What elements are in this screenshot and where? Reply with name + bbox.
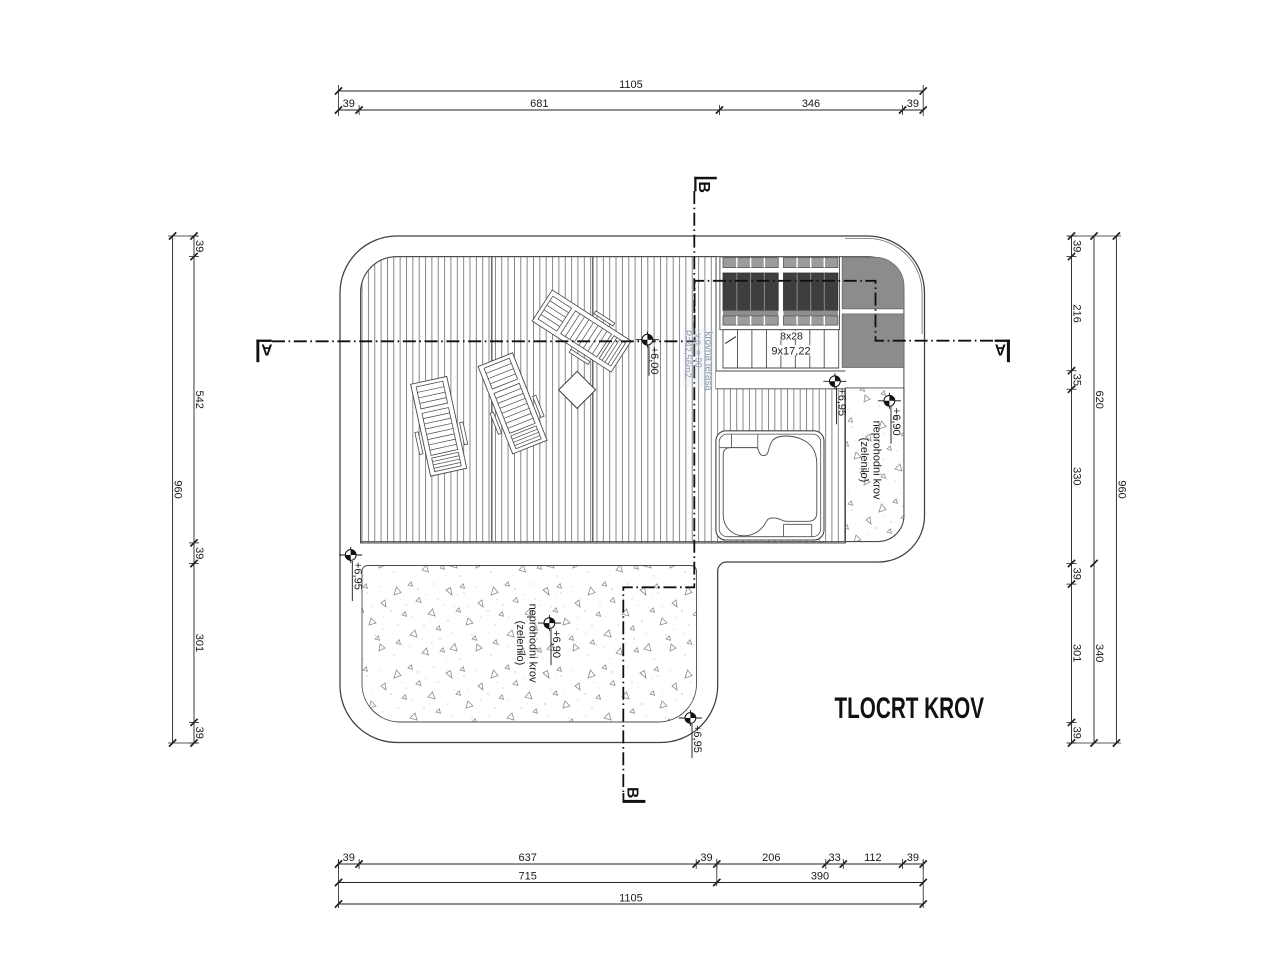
- svg-text:112: 112: [864, 852, 882, 864]
- svg-text:neprohodni krov: neprohodni krov: [527, 604, 539, 683]
- svg-text:(zelenilo): (zelenilo): [858, 438, 870, 483]
- svg-text:39: 39: [193, 547, 205, 559]
- svg-text:330: 330: [1071, 467, 1083, 485]
- svg-text:B: B: [695, 181, 712, 193]
- svg-text:(zelenilo): (zelenilo): [514, 621, 526, 666]
- svg-text:346: 346: [802, 98, 820, 110]
- svg-text:39: 39: [343, 98, 355, 110]
- svg-text:39: 39: [193, 727, 205, 739]
- svg-text:1105: 1105: [619, 893, 643, 905]
- svg-text:+6,90: +6,90: [550, 630, 562, 658]
- svg-text:9x17,22: 9x17,22: [771, 345, 810, 357]
- svg-text:39: 39: [1071, 240, 1083, 252]
- svg-text:P=42,56m2: P=42,56m2: [683, 330, 693, 378]
- svg-text:301: 301: [1071, 644, 1083, 662]
- svg-text:neprohodni krov: neprohodni krov: [871, 421, 883, 500]
- svg-text:620: 620: [1093, 391, 1105, 409]
- svg-text:681: 681: [530, 98, 548, 110]
- svg-text:340: 340: [1093, 644, 1105, 662]
- svg-text:960: 960: [1115, 480, 1127, 498]
- svg-text:+6,00: +6,00: [648, 347, 660, 375]
- svg-text:+6,95: +6,95: [836, 388, 848, 416]
- svg-text:v.p. = 90: v.p. = 90: [694, 334, 704, 368]
- svg-text:33: 33: [828, 852, 840, 864]
- svg-text:+6,95: +6,95: [352, 562, 364, 590]
- svg-text:A: A: [261, 341, 272, 358]
- svg-text:715: 715: [519, 871, 537, 883]
- svg-text:TLOCRT KROV: TLOCRT KROV: [835, 692, 985, 725]
- svg-text:206: 206: [762, 852, 780, 864]
- svg-text:39: 39: [700, 852, 712, 864]
- svg-text:39: 39: [1071, 727, 1083, 739]
- svg-text:637: 637: [519, 852, 537, 864]
- svg-text:+6,95: +6,95: [691, 725, 703, 753]
- svg-text:35: 35: [1071, 374, 1083, 386]
- svg-text:B: B: [624, 787, 641, 798]
- svg-text:A: A: [995, 341, 1006, 358]
- svg-text:216: 216: [1071, 304, 1083, 322]
- svg-text:390: 390: [811, 871, 829, 883]
- svg-text:39: 39: [1071, 568, 1083, 580]
- svg-text:542: 542: [193, 391, 205, 409]
- svg-text:960: 960: [172, 480, 184, 498]
- svg-text:39: 39: [907, 852, 919, 864]
- svg-text:1105: 1105: [619, 79, 643, 91]
- svg-text:39: 39: [907, 98, 919, 110]
- svg-text:+6,90: +6,90: [890, 408, 902, 436]
- svg-text:8x28: 8x28: [780, 330, 803, 342]
- svg-text:301: 301: [193, 634, 205, 652]
- svg-text:39: 39: [343, 852, 355, 864]
- svg-text:39: 39: [193, 240, 205, 252]
